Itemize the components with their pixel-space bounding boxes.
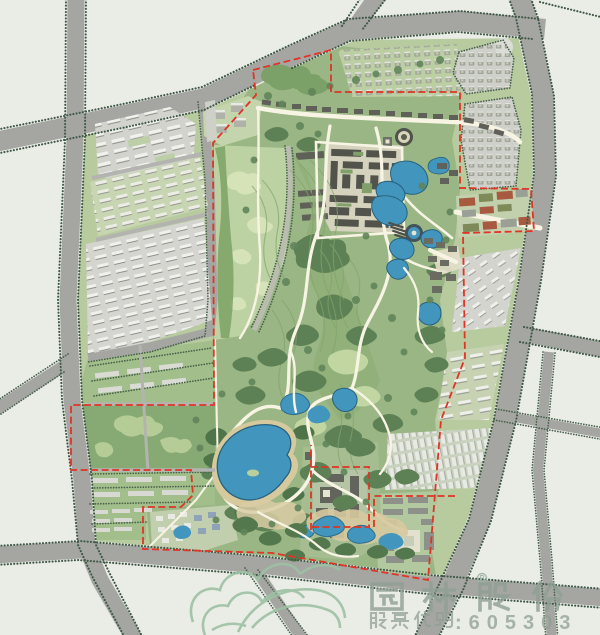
svg-text::605303: :605303 <box>455 612 577 634</box>
